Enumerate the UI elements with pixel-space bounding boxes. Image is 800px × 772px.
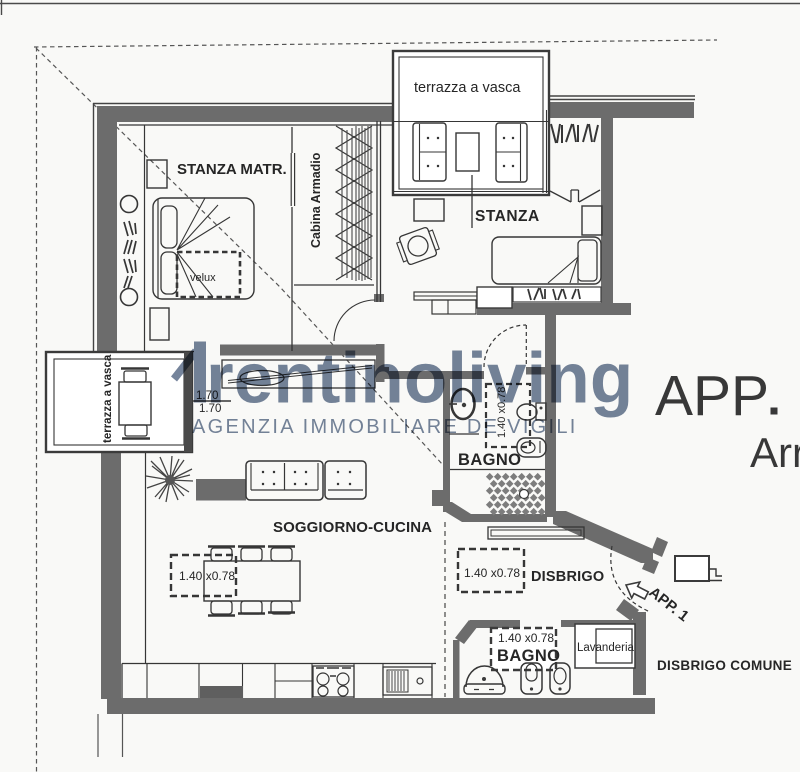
svg-text:1.40 x0.78: 1.40 x0.78 [179,569,235,583]
svg-text:1.40 x0.78: 1.40 x0.78 [498,631,554,645]
svg-text:Lavanderia: Lavanderia [577,642,635,654]
svg-text:APP: APP [655,364,769,428]
svg-text:terrazza a vasca: terrazza a vasca [102,354,114,443]
svg-text:BAGNO: BAGNO [458,451,521,469]
svg-text:STANZA MATR.: STANZA MATR. [177,161,287,178]
svg-text:SOGGIORNO-CUCINA: SOGGIORNO-CUCINA [273,519,432,536]
svg-text:velux: velux [190,272,216,284]
svg-text:STANZA: STANZA [475,208,540,225]
svg-text:AGENZIA IMMOBILIARE DE VIGILI: AGENZIA IMMOBILIARE DE VIGILI [192,416,578,438]
svg-text:Cabina Armadio: Cabina Armadio [309,152,323,248]
svg-text:1.40 x0.78: 1.40 x0.78 [464,566,520,580]
svg-text:rentinoliving: rentinoliving [206,340,633,419]
svg-text:APP. 1: APP. 1 [646,584,692,625]
svg-text:DISBRIGO COMUNE: DISBRIGO COMUNE [657,658,792,673]
svg-text:DISBRIGO: DISBRIGO [531,569,604,585]
svg-text:Arre: Arre [750,429,800,476]
svg-text:terrazza a vasca: terrazza a vasca [414,80,521,96]
